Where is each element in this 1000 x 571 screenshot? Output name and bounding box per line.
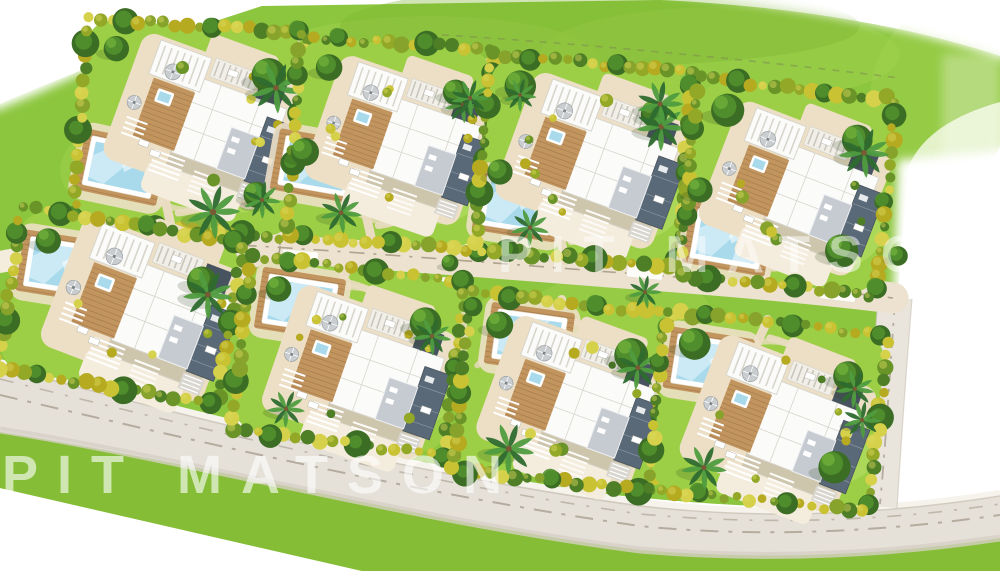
site-plan-svg [0, 0, 1000, 571]
site-plan: PIT MATSON PIT MATSON [0, 0, 1000, 571]
white-area [893, 150, 1000, 300]
